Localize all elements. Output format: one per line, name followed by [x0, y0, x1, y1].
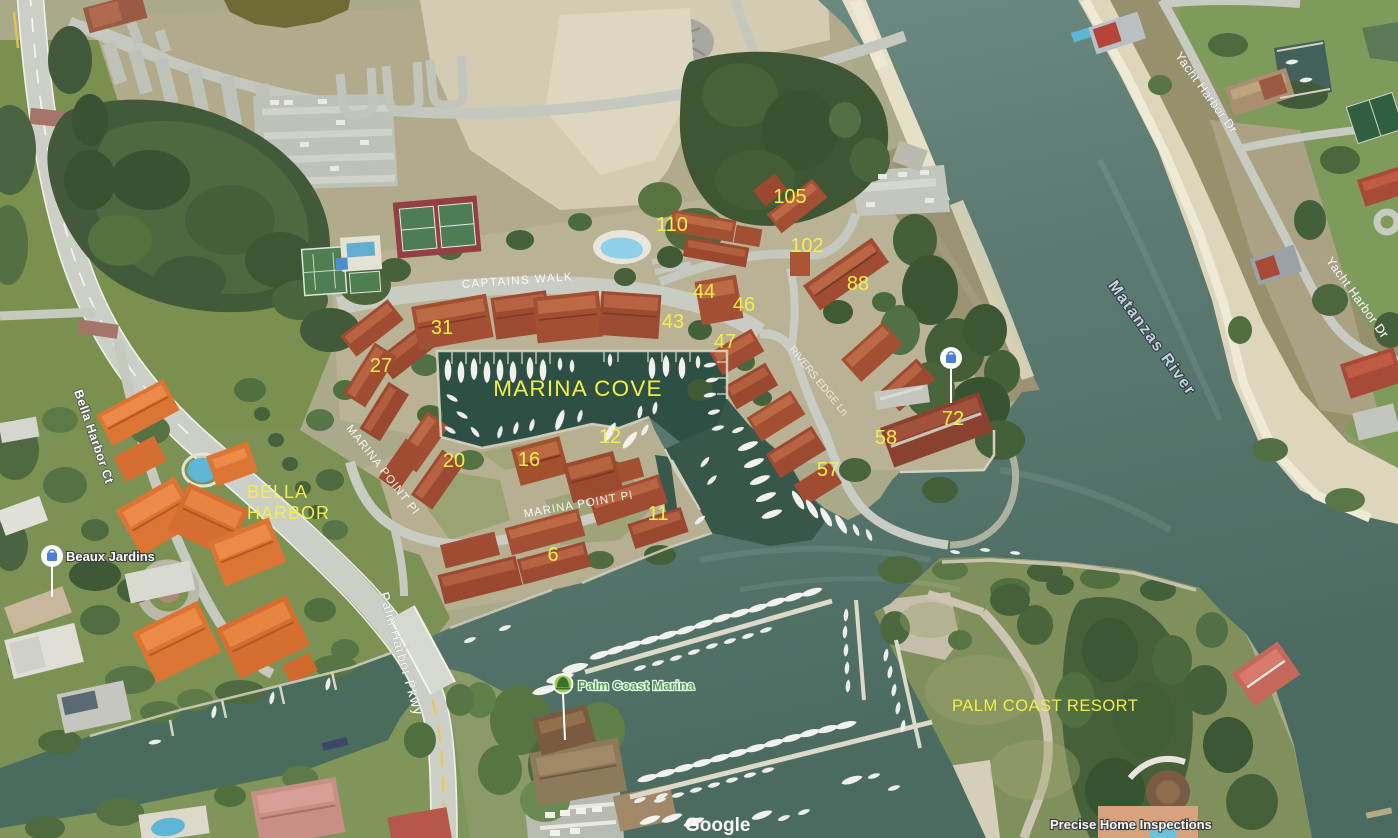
svg-text:16: 16: [518, 449, 540, 471]
svg-text:12: 12: [599, 426, 621, 448]
svg-text:58: 58: [875, 427, 897, 449]
svg-text:72: 72: [942, 408, 964, 430]
svg-text:105: 105: [773, 186, 806, 208]
svg-text:57: 57: [817, 459, 839, 481]
svg-text:110: 110: [656, 214, 688, 236]
svg-text:Beaux Jardins: Beaux Jardins: [66, 549, 155, 564]
svg-text:PALM COAST RESORT: PALM COAST RESORT: [952, 697, 1138, 715]
svg-text:Google: Google: [685, 815, 750, 836]
svg-text:6: 6: [547, 544, 558, 566]
svg-text:44: 44: [693, 281, 715, 303]
svg-text:88: 88: [847, 273, 869, 295]
svg-text:20: 20: [443, 450, 465, 472]
svg-text:102: 102: [790, 235, 823, 257]
svg-text:46: 46: [733, 294, 755, 316]
svg-text:47: 47: [714, 331, 736, 353]
svg-text:MARINA COVE: MARINA COVE: [493, 376, 662, 401]
svg-text:43: 43: [662, 311, 684, 333]
svg-text:Palm Coast Marina: Palm Coast Marina: [578, 678, 695, 693]
svg-text:Precise Home Inspections: Precise Home Inspections: [1050, 817, 1212, 832]
svg-text:31: 31: [431, 317, 453, 339]
svg-text:BELLA: BELLA: [247, 482, 308, 502]
svg-text:11: 11: [648, 503, 669, 525]
svg-text:27: 27: [370, 355, 392, 377]
svg-text:HARBOR: HARBOR: [247, 503, 330, 523]
